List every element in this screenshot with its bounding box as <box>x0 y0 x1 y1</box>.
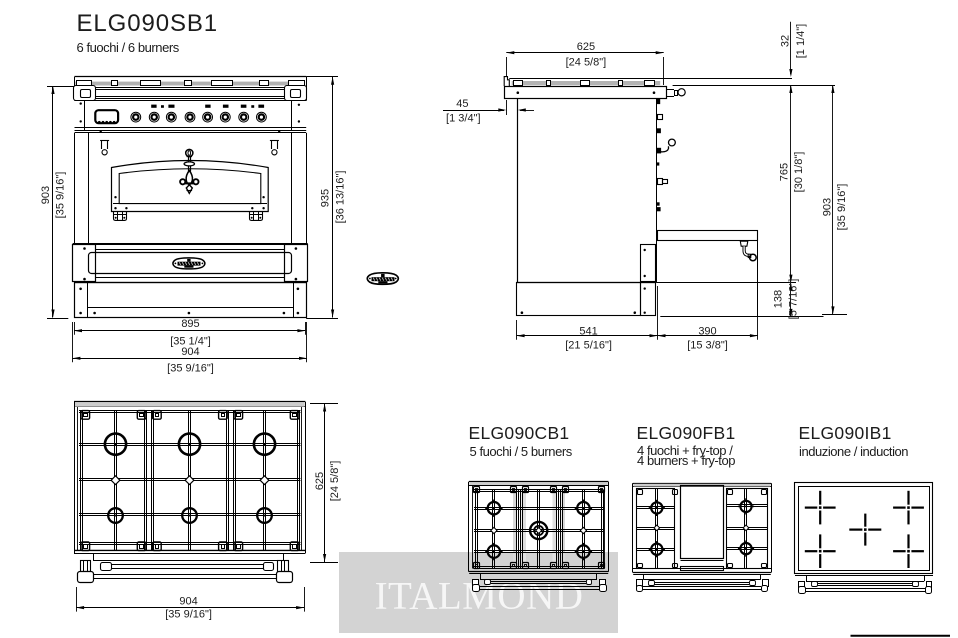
svg-text:390: 390 <box>698 326 716 338</box>
svg-text:[35 9/16"]: [35 9/16"] <box>167 362 214 374</box>
svg-text:[36 13/16"]: [36 13/16"] <box>334 171 346 224</box>
svg-text:[35 9/16"]: [35 9/16"] <box>836 184 848 231</box>
svg-text:[24 5/8"]: [24 5/8"] <box>329 461 341 502</box>
svg-text:[21 5/16"]: [21 5/16"] <box>565 339 612 351</box>
svg-text:[35 9/16"]: [35 9/16"] <box>55 172 67 219</box>
svg-text:541: 541 <box>579 326 597 338</box>
svg-text:[5 7/16"]: [5 7/16"] <box>788 279 800 320</box>
svg-text:895: 895 <box>181 318 199 330</box>
svg-text:903: 903 <box>821 198 833 216</box>
svg-text:32: 32 <box>780 35 792 47</box>
svg-text:904: 904 <box>179 595 197 607</box>
svg-text:[35 9/16"]: [35 9/16"] <box>165 609 212 621</box>
svg-text:[24 5/8"]: [24 5/8"] <box>566 57 607 69</box>
svg-text:[15 3/8"]: [15 3/8"] <box>687 339 728 351</box>
svg-text:904: 904 <box>181 346 199 358</box>
svg-text:[1 3/4"]: [1 3/4"] <box>446 113 480 125</box>
svg-text:[1 1/4"]: [1 1/4"] <box>795 24 807 58</box>
svg-text:935: 935 <box>320 189 332 207</box>
svg-text:45: 45 <box>456 98 468 110</box>
svg-text:138: 138 <box>773 290 785 308</box>
svg-text:625: 625 <box>314 472 326 490</box>
svg-text:903: 903 <box>40 186 52 204</box>
svg-text:625: 625 <box>577 41 595 53</box>
svg-text:765: 765 <box>778 163 790 181</box>
svg-text:[30 1/8"]: [30 1/8"] <box>793 152 805 193</box>
